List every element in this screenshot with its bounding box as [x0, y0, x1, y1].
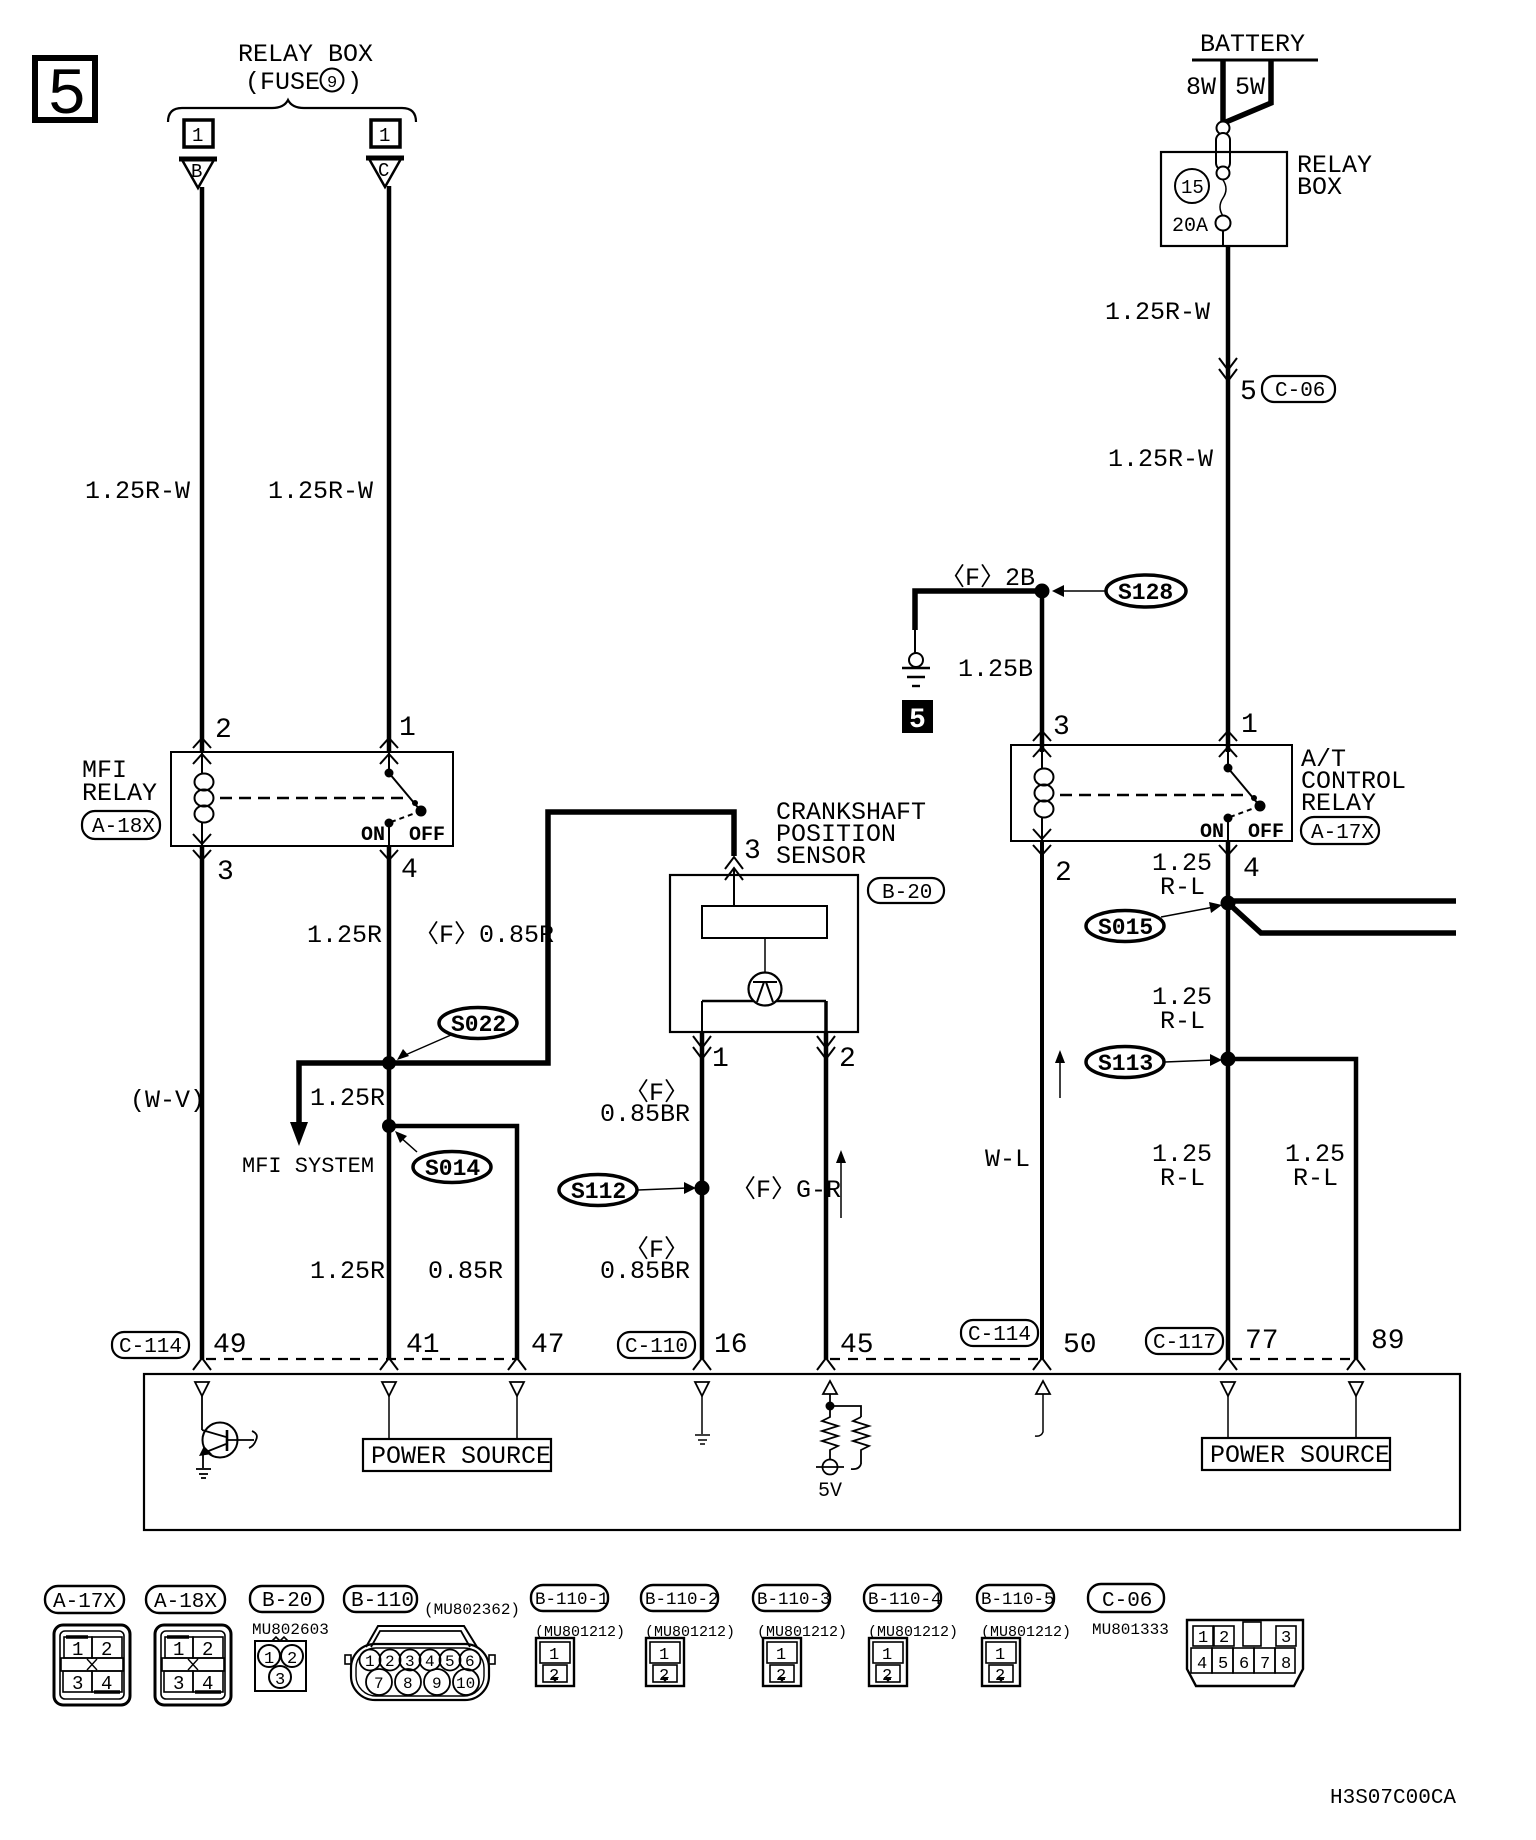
svg-text:1: 1 [776, 1646, 786, 1665]
svg-text:1.25R: 1.25R [310, 1257, 385, 1286]
svg-text:B-20: B-20 [262, 1590, 312, 1613]
svg-text:B-20: B-20 [882, 882, 932, 905]
svg-text:2: 2 [995, 1667, 1005, 1686]
svg-text:0.85R: 0.85R [428, 1257, 503, 1286]
svg-text:〈F〉0.85R: 〈F〉0.85R [414, 920, 554, 950]
svg-text:2: 2 [385, 1653, 395, 1671]
svg-text:B-110-2: B-110-2 [645, 1590, 719, 1610]
svg-text:5: 5 [1240, 377, 1257, 408]
svg-text:2: 2 [776, 1667, 786, 1686]
svg-text:(FUSE: (FUSE [245, 68, 320, 97]
svg-text:3: 3 [217, 857, 234, 888]
svg-text:1: 1 [1241, 710, 1258, 741]
svg-text:8W: 8W [1186, 73, 1216, 102]
svg-text:3: 3 [405, 1653, 415, 1671]
svg-text:1: 1 [72, 1639, 83, 1661]
svg-text:R-L: R-L [1160, 1007, 1205, 1036]
svg-text:S128: S128 [1118, 580, 1173, 606]
svg-text:C-117: C-117 [1153, 1332, 1216, 1355]
svg-text:4: 4 [202, 1673, 213, 1695]
svg-text:2: 2 [659, 1667, 669, 1686]
svg-text:1: 1 [1198, 1629, 1208, 1648]
svg-text:45: 45 [840, 1330, 874, 1361]
svg-text:5: 5 [445, 1653, 455, 1671]
svg-text:5V: 5V [818, 1480, 842, 1503]
svg-text:0.85BR: 0.85BR [600, 1257, 690, 1286]
svg-text:5: 5 [47, 58, 87, 133]
svg-text:MFI SYSTEM: MFI SYSTEM [242, 1154, 374, 1179]
svg-text:1: 1 [264, 1650, 274, 1669]
svg-text:C: C [378, 160, 389, 182]
svg-text:7: 7 [1260, 1655, 1270, 1674]
svg-text:4: 4 [1197, 1655, 1207, 1674]
svg-text:9: 9 [327, 74, 337, 93]
svg-text:S014: S014 [425, 1156, 480, 1182]
svg-text:S112: S112 [571, 1179, 626, 1205]
svg-text:1.25R-W: 1.25R-W [1105, 298, 1210, 327]
svg-text:3: 3 [72, 1673, 83, 1695]
svg-text:R-L: R-L [1160, 873, 1205, 902]
svg-text:89: 89 [1371, 1326, 1405, 1357]
svg-text:OFF: OFF [409, 824, 445, 847]
svg-text:8: 8 [1281, 1655, 1291, 1674]
svg-text:W-L: W-L [985, 1145, 1030, 1174]
svg-text:2: 2 [549, 1667, 559, 1686]
svg-text:B-110-5: B-110-5 [981, 1590, 1055, 1610]
svg-text:9: 9 [432, 1675, 442, 1693]
svg-text:2: 2 [101, 1639, 112, 1661]
svg-text:2: 2 [202, 1639, 213, 1661]
svg-text:5W: 5W [1235, 73, 1265, 102]
svg-text:RELAY: RELAY [1301, 789, 1376, 818]
svg-text:MU802603: MU802603 [252, 1621, 329, 1639]
svg-text:POWER SOURCE: POWER SOURCE [371, 1442, 551, 1471]
svg-text:R-L: R-L [1160, 1164, 1205, 1193]
svg-text:4: 4 [1243, 854, 1260, 885]
svg-text:B-110-3: B-110-3 [757, 1590, 831, 1610]
svg-text:BATTERY: BATTERY [1200, 30, 1305, 59]
svg-text:2: 2 [1055, 858, 1072, 889]
svg-text:3: 3 [173, 1673, 184, 1695]
svg-text:2: 2 [287, 1650, 297, 1669]
svg-text:1.25R: 1.25R [310, 1084, 385, 1113]
svg-text:C-06: C-06 [1275, 380, 1325, 403]
svg-text:2: 2 [839, 1044, 856, 1075]
svg-text:MU801333: MU801333 [1092, 1621, 1169, 1639]
svg-text:A-18X: A-18X [92, 816, 155, 839]
svg-text:20A: 20A [1172, 215, 1208, 238]
svg-text:C-110: C-110 [625, 1336, 688, 1359]
svg-text:1: 1 [399, 713, 416, 744]
svg-text:4: 4 [101, 1673, 112, 1695]
svg-text:ON: ON [1200, 821, 1224, 844]
svg-text:B-110: B-110 [351, 1590, 414, 1613]
svg-text:A-17X: A-17X [1311, 822, 1374, 845]
svg-text:4: 4 [401, 855, 418, 886]
svg-text:4: 4 [425, 1653, 435, 1671]
svg-text:77: 77 [1245, 1326, 1279, 1357]
svg-text:B: B [191, 161, 202, 183]
svg-text:3: 3 [1053, 712, 1070, 743]
svg-text:3: 3 [744, 836, 761, 867]
svg-text:H3S07C00CA: H3S07C00CA [1330, 1787, 1456, 1810]
svg-text:1.25R: 1.25R [307, 921, 382, 950]
svg-text:C-114: C-114 [968, 1324, 1031, 1347]
svg-text:1: 1 [549, 1646, 559, 1665]
svg-text:1: 1 [365, 1653, 375, 1671]
svg-text:47: 47 [531, 1330, 565, 1361]
svg-text:1: 1 [192, 125, 203, 147]
svg-text:15: 15 [1181, 177, 1204, 199]
svg-text:C-114: C-114 [119, 1336, 182, 1359]
svg-text:1: 1 [712, 1044, 729, 1075]
svg-text:1: 1 [379, 125, 390, 147]
svg-text:B-110-4: B-110-4 [868, 1590, 942, 1610]
svg-text:RELAY: RELAY [82, 779, 157, 808]
svg-text:(W-V): (W-V) [130, 1086, 205, 1115]
svg-text:C-06: C-06 [1102, 1590, 1152, 1613]
svg-text:RELAY BOX: RELAY BOX [238, 40, 373, 69]
svg-text:2: 2 [215, 715, 232, 746]
svg-text:5: 5 [909, 705, 926, 736]
svg-text:(MU802362): (MU802362) [424, 1601, 520, 1619]
svg-text:2: 2 [1219, 1629, 1229, 1648]
svg-text:OFF: OFF [1248, 821, 1284, 844]
svg-text:1.25R-W: 1.25R-W [85, 477, 190, 506]
svg-text:B-110-1: B-110-1 [535, 1590, 609, 1610]
svg-text:3: 3 [1281, 1629, 1291, 1648]
svg-text:5: 5 [1218, 1655, 1228, 1674]
svg-text:6: 6 [1239, 1655, 1249, 1674]
svg-text:8: 8 [403, 1675, 413, 1693]
svg-text:1.25B: 1.25B [958, 655, 1033, 684]
svg-text:S022: S022 [451, 1012, 506, 1038]
svg-text:16: 16 [714, 1330, 748, 1361]
svg-text:ON: ON [361, 824, 385, 847]
svg-text:S113: S113 [1098, 1051, 1153, 1077]
svg-text:1.25R-W: 1.25R-W [268, 477, 373, 506]
svg-text:A-18X: A-18X [154, 1591, 217, 1614]
svg-text:SENSOR: SENSOR [776, 842, 866, 871]
svg-text:1.25R-W: 1.25R-W [1108, 445, 1213, 474]
svg-text:BOX: BOX [1297, 173, 1342, 202]
svg-text:〈F〉G-R: 〈F〉G-R [731, 1175, 841, 1205]
svg-text:2: 2 [882, 1667, 892, 1686]
svg-text:1: 1 [882, 1646, 892, 1665]
svg-text:3: 3 [275, 1671, 285, 1690]
svg-text:6: 6 [465, 1653, 475, 1671]
svg-text:A-17X: A-17X [53, 1591, 116, 1614]
svg-text:1: 1 [659, 1646, 669, 1665]
svg-text:50: 50 [1063, 1330, 1097, 1361]
svg-text:R-L: R-L [1293, 1164, 1338, 1193]
svg-text:41: 41 [406, 1330, 440, 1361]
svg-text:10: 10 [456, 1675, 475, 1693]
svg-text:49: 49 [213, 1330, 247, 1361]
svg-text:0.85BR: 0.85BR [600, 1100, 690, 1129]
svg-text:S015: S015 [1098, 915, 1153, 941]
svg-text:7: 7 [374, 1675, 384, 1693]
svg-text:POWER SOURCE: POWER SOURCE [1210, 1441, 1390, 1470]
svg-text:): ) [347, 68, 362, 97]
svg-text:1: 1 [995, 1646, 1005, 1665]
svg-text:1: 1 [173, 1639, 184, 1661]
